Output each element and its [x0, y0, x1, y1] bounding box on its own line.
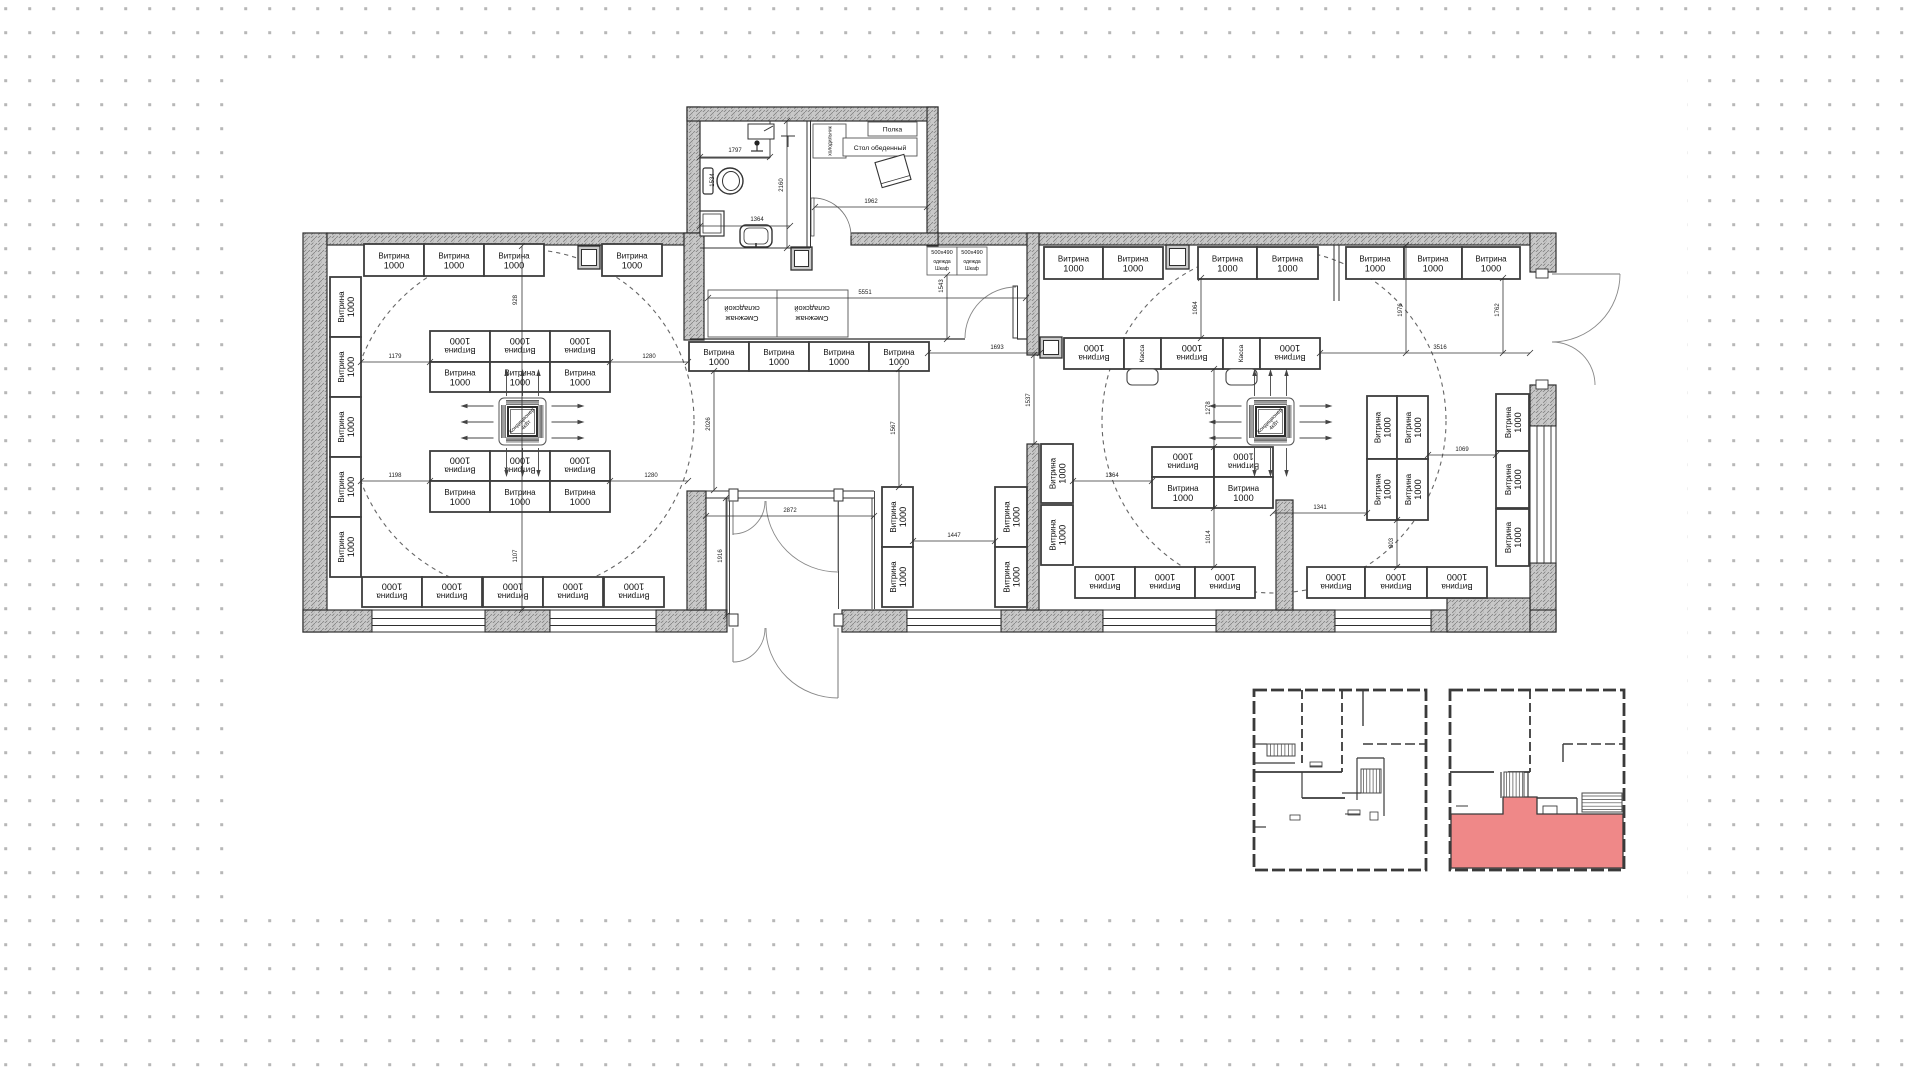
- svg-text:1000: 1000: [382, 582, 402, 592]
- svg-text:Витрина: Витрина: [504, 346, 536, 355]
- svg-text:Витрина: Витрина: [1374, 473, 1383, 505]
- svg-text:1000: 1000: [570, 497, 590, 507]
- svg-text:Витрина: Витрина: [1003, 501, 1012, 533]
- svg-text:1000: 1000: [442, 582, 462, 592]
- svg-text:складской: складской: [794, 304, 830, 313]
- svg-text:1000: 1000: [624, 582, 644, 592]
- svg-text:Витрина: Витрина: [823, 348, 855, 357]
- svg-text:Витрина: Витрина: [1504, 521, 1513, 553]
- svg-text:1000: 1000: [1155, 572, 1175, 582]
- svg-text:1567: 1567: [891, 421, 897, 435]
- svg-text:1364: 1364: [1105, 473, 1119, 479]
- svg-text:Витрина: Витрина: [376, 592, 408, 601]
- svg-text:Шкаф: Шкаф: [935, 266, 949, 272]
- svg-text:1000: 1000: [1365, 264, 1385, 274]
- svg-text:500x490: 500x490: [931, 250, 952, 256]
- svg-text:1537: 1537: [1026, 393, 1032, 407]
- svg-text:1447: 1447: [947, 533, 961, 539]
- svg-text:1000: 1000: [510, 497, 530, 507]
- svg-text:1916: 1916: [718, 549, 724, 563]
- svg-text:1000: 1000: [1383, 417, 1393, 437]
- svg-text:1000: 1000: [1413, 479, 1423, 499]
- svg-text:1000: 1000: [510, 378, 530, 388]
- svg-text:1000: 1000: [450, 336, 470, 346]
- svg-text:928: 928: [513, 294, 519, 305]
- svg-text:1064: 1064: [1193, 301, 1199, 315]
- svg-text:Витрина: Витрина: [564, 346, 596, 355]
- svg-text:1000: 1000: [1233, 493, 1253, 503]
- svg-text:1341: 1341: [1313, 505, 1327, 511]
- svg-text:Витрина: Витрина: [497, 592, 529, 601]
- svg-text:1000: 1000: [1413, 417, 1423, 437]
- svg-text:Витрина: Витрина: [889, 561, 898, 593]
- svg-text:Витрина: Витрина: [498, 252, 530, 261]
- svg-text:Витрина: Витрина: [557, 592, 589, 601]
- svg-text:1000: 1000: [1058, 525, 1068, 545]
- svg-text:Витрина: Витрина: [883, 348, 915, 357]
- svg-text:Витрина: Витрина: [1167, 462, 1199, 471]
- svg-text:Витрина: Витрина: [1441, 582, 1473, 591]
- svg-text:1000: 1000: [709, 357, 729, 367]
- svg-text:Витрина: Витрина: [337, 351, 346, 383]
- svg-text:Витрина: Витрина: [1149, 582, 1181, 591]
- svg-text:Витрина: Витрина: [564, 488, 596, 497]
- svg-text:1000: 1000: [829, 357, 849, 367]
- svg-text:холодильник: холодильник: [828, 125, 834, 156]
- svg-text:Витрина: Витрина: [1176, 353, 1208, 362]
- svg-text:1000: 1000: [346, 297, 356, 317]
- svg-text:Витрина: Витрина: [337, 411, 346, 443]
- svg-text:Витрина: Витрина: [1359, 255, 1391, 264]
- svg-text:1000: 1000: [570, 456, 590, 466]
- svg-text:Витрина: Витрина: [1228, 484, 1260, 493]
- svg-text:1962: 1962: [864, 199, 878, 205]
- svg-text:Витрина: Витрина: [1504, 406, 1513, 438]
- svg-text:Витрина: Витрина: [1417, 255, 1449, 264]
- svg-text:2160: 2160: [779, 178, 785, 192]
- svg-text:Витрина: Витрина: [1167, 484, 1199, 493]
- svg-text:1000: 1000: [898, 567, 908, 587]
- svg-text:1179: 1179: [389, 354, 403, 360]
- svg-text:1543: 1543: [939, 279, 945, 293]
- svg-text:1000: 1000: [1513, 469, 1523, 489]
- svg-text:1000: 1000: [1277, 264, 1297, 274]
- svg-text:Витрина: Витрина: [1274, 353, 1306, 362]
- svg-text:1000: 1000: [1326, 572, 1346, 582]
- svg-text:Витрина: Витрина: [1003, 561, 1012, 593]
- svg-text:1000: 1000: [1447, 572, 1467, 582]
- svg-text:одежда: одежда: [963, 259, 981, 265]
- svg-text:Витрина: Витрина: [1049, 519, 1058, 551]
- svg-text:1198: 1198: [389, 473, 403, 479]
- svg-text:1000: 1000: [503, 582, 523, 592]
- svg-text:Витрина: Витрина: [444, 488, 476, 497]
- svg-text:1000: 1000: [510, 456, 530, 466]
- svg-text:Витрина: Витрина: [1209, 582, 1241, 591]
- svg-text:Витрина: Витрина: [438, 252, 470, 261]
- svg-text:Витрина: Витрина: [1089, 582, 1121, 591]
- svg-text:1000: 1000: [1513, 527, 1523, 547]
- svg-text:1000: 1000: [1084, 343, 1104, 353]
- svg-text:Витрина: Витрина: [1404, 473, 1413, 505]
- svg-text:Витрина: Витрина: [1504, 463, 1513, 495]
- svg-text:1000: 1000: [1173, 493, 1193, 503]
- svg-text:Витрина: Витрина: [504, 369, 536, 378]
- svg-text:Шкаф: Шкаф: [965, 266, 979, 272]
- svg-text:1000: 1000: [1182, 343, 1202, 353]
- svg-text:1000: 1000: [1063, 264, 1083, 274]
- svg-text:Касса: Касса: [1238, 344, 1245, 362]
- svg-text:1069: 1069: [1455, 447, 1469, 453]
- svg-text:1107: 1107: [513, 549, 519, 563]
- svg-text:Смежнаж: Смежнаж: [725, 314, 758, 323]
- svg-text:одежда: одежда: [933, 259, 951, 265]
- svg-text:1000: 1000: [1386, 572, 1406, 582]
- svg-text:Витрина: Витрина: [337, 531, 346, 563]
- svg-text:1000: 1000: [450, 456, 470, 466]
- svg-text:1000: 1000: [769, 357, 789, 367]
- svg-text:Витрина: Витрина: [889, 501, 898, 533]
- svg-text:1000: 1000: [1280, 343, 1300, 353]
- svg-text:Витрина: Витрина: [564, 369, 596, 378]
- svg-text:Стол обеденный: Стол обеденный: [854, 144, 907, 152]
- svg-text:1000: 1000: [1423, 264, 1443, 274]
- svg-text:1000: 1000: [570, 378, 590, 388]
- svg-text:1000: 1000: [1481, 264, 1501, 274]
- svg-text:1000: 1000: [384, 261, 404, 271]
- svg-text:1000: 1000: [450, 497, 470, 507]
- svg-text:1000: 1000: [510, 336, 530, 346]
- svg-text:1000: 1000: [570, 336, 590, 346]
- svg-text:Смежнаж: Смежнаж: [795, 314, 828, 323]
- svg-text:1000: 1000: [1058, 463, 1068, 483]
- svg-text:1278: 1278: [1206, 401, 1212, 415]
- svg-text:1762: 1762: [1495, 303, 1501, 317]
- svg-text:Витрина: Витрина: [1058, 255, 1090, 264]
- svg-text:1000: 1000: [450, 378, 470, 388]
- svg-text:1534: 1534: [710, 173, 716, 187]
- svg-text:1000: 1000: [1012, 567, 1022, 587]
- svg-text:Витрина: Витрина: [436, 592, 468, 601]
- svg-text:1000: 1000: [1215, 572, 1235, 582]
- svg-text:Витрина: Витрина: [1380, 582, 1412, 591]
- svg-text:Витрина: Витрина: [337, 291, 346, 323]
- svg-text:2026: 2026: [706, 417, 712, 431]
- svg-text:Полка: Полка: [883, 127, 903, 134]
- svg-text:Витрина: Витрина: [1374, 411, 1383, 443]
- svg-text:803: 803: [1389, 537, 1395, 548]
- svg-text:5551: 5551: [858, 290, 872, 296]
- svg-text:Витрина: Витрина: [444, 346, 476, 355]
- svg-text:Витрина: Витрина: [1078, 353, 1110, 362]
- svg-text:1000: 1000: [1012, 507, 1022, 527]
- svg-text:1000: 1000: [898, 507, 908, 527]
- svg-text:Витрина: Витрина: [763, 348, 795, 357]
- svg-text:Витрина: Витрина: [337, 471, 346, 503]
- svg-text:1000: 1000: [346, 537, 356, 557]
- svg-text:Витрина: Витрина: [618, 592, 650, 601]
- svg-text:Витрина: Витрина: [444, 369, 476, 378]
- svg-text:3516: 3516: [1433, 345, 1447, 351]
- svg-text:1000: 1000: [1383, 479, 1393, 499]
- svg-text:Витрина: Витрина: [1049, 457, 1058, 489]
- svg-text:Витрина: Витрина: [564, 466, 596, 475]
- svg-text:1000: 1000: [346, 477, 356, 497]
- svg-text:1000: 1000: [1123, 264, 1143, 274]
- svg-text:1000: 1000: [504, 261, 524, 271]
- svg-text:1000: 1000: [1217, 264, 1237, 274]
- svg-text:1000: 1000: [346, 357, 356, 377]
- svg-text:1000: 1000: [346, 417, 356, 437]
- svg-text:1280: 1280: [644, 473, 658, 479]
- svg-text:Витрина: Витрина: [504, 488, 536, 497]
- svg-text:500x490: 500x490: [961, 250, 982, 256]
- svg-text:1000: 1000: [622, 261, 642, 271]
- svg-text:Касса: Касса: [1139, 344, 1146, 362]
- svg-text:складской: складской: [724, 304, 760, 313]
- svg-text:1693: 1693: [990, 345, 1004, 351]
- svg-text:1976: 1976: [1398, 303, 1404, 317]
- svg-text:Витрина: Витрина: [1320, 582, 1352, 591]
- svg-text:1000: 1000: [1095, 572, 1115, 582]
- svg-text:1000: 1000: [563, 582, 583, 592]
- svg-text:Витрина: Витрина: [444, 466, 476, 475]
- svg-text:1000: 1000: [889, 357, 909, 367]
- svg-text:Витрина: Витрина: [1272, 255, 1304, 264]
- svg-text:Витрина: Витрина: [378, 252, 410, 261]
- svg-text:Витрина: Витрина: [616, 252, 648, 261]
- svg-text:1280: 1280: [642, 354, 656, 360]
- svg-text:Витрина: Витрина: [1212, 255, 1244, 264]
- svg-text:1000: 1000: [444, 261, 464, 271]
- svg-text:Витрина: Витрина: [1404, 411, 1413, 443]
- svg-text:1014: 1014: [1206, 530, 1212, 544]
- svg-text:Витрина: Витрина: [703, 348, 735, 357]
- svg-text:1000: 1000: [1173, 452, 1193, 462]
- svg-text:Витрина: Витрина: [1475, 255, 1507, 264]
- svg-text:2872: 2872: [783, 508, 797, 514]
- svg-text:1364: 1364: [750, 217, 764, 223]
- svg-text:1000: 1000: [1233, 452, 1253, 462]
- svg-text:1797: 1797: [728, 148, 742, 154]
- svg-text:1000: 1000: [1513, 412, 1523, 432]
- svg-text:Витрина: Витрина: [1117, 255, 1149, 264]
